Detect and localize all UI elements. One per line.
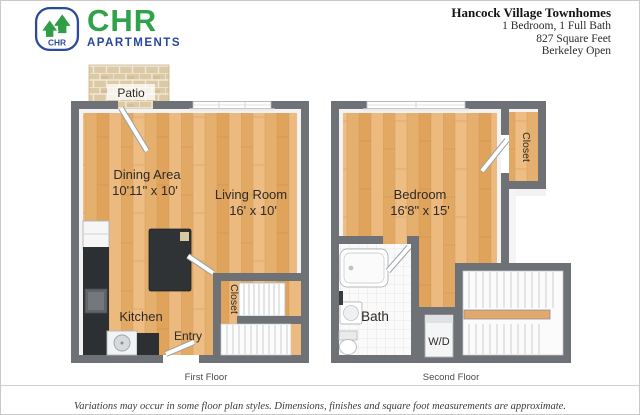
property-bed-bath: 1 Bedroom, 1 Full Bath	[451, 20, 611, 33]
stove	[85, 289, 107, 313]
property-title: Hancock Village Townhomes	[451, 6, 611, 20]
first-floor-plan: Patio	[61, 59, 321, 389]
property-info: Hancock Village Townhomes 1 Bedroom, 1 F…	[451, 6, 611, 58]
refrigerator	[83, 221, 109, 249]
kitchen-label: Kitchen	[119, 309, 162, 324]
brand-subtitle: APARTMENTS	[87, 37, 181, 49]
bathtub	[340, 249, 388, 287]
wd-label: W/D	[428, 336, 449, 348]
kitchen-island	[149, 229, 191, 291]
dining-area-dims: 10'11" x 10'	[112, 183, 178, 198]
counter-segment	[137, 333, 159, 355]
footer-divider	[1, 385, 639, 386]
bathroom-sink	[340, 302, 362, 324]
bedroom-windows	[363, 102, 469, 112]
bedroom-dims: 16'8" x 15'	[390, 203, 449, 218]
living-room-dims: 16' x 10'	[229, 203, 277, 218]
living-room-label: Living Room	[215, 187, 287, 202]
brand-wordmark: CHR APARTMENTS	[87, 6, 181, 49]
property-sqft: 827 Square Feet	[451, 33, 611, 46]
stair-railing	[464, 310, 550, 319]
washer-dryer: W/D	[425, 315, 453, 357]
bath-label: Bath	[361, 309, 389, 324]
towel-bar	[339, 291, 343, 305]
kitchen-sink	[107, 331, 137, 355]
floorplan-page: CHR CHR APARTMENTS Hancock Village Townh…	[0, 0, 640, 415]
patio-label: Patio	[117, 86, 145, 100]
living-room-window	[189, 102, 275, 112]
brand-name: CHR	[87, 6, 181, 36]
second-floor-plan: Bath W/D	[323, 59, 579, 389]
property-plan-name: Berkeley Open	[451, 45, 611, 58]
second-floor-closet-label: Closet	[520, 132, 532, 162]
entry-label: Entry	[174, 329, 202, 343]
bedroom-label: Bedroom	[394, 187, 447, 202]
second-floor-caption: Second Floor	[323, 372, 579, 383]
badge-text: CHR	[48, 38, 66, 48]
first-floor-caption: First Floor	[76, 372, 336, 383]
staircase-first-floor	[221, 324, 291, 355]
closet-louver-doors	[239, 283, 285, 316]
staircase-second-floor	[463, 271, 563, 355]
toilet	[339, 331, 357, 355]
bedroom-wall-face	[509, 189, 516, 263]
first-floor-closet-label: Closet	[228, 284, 240, 314]
chr-tree-icon: CHR	[34, 6, 80, 52]
dining-area-label: Dining Area	[113, 167, 181, 182]
disclaimer-text: Variations may occur in some floor plan …	[1, 401, 639, 412]
chr-logo: CHR CHR APARTMENTS	[34, 6, 181, 52]
